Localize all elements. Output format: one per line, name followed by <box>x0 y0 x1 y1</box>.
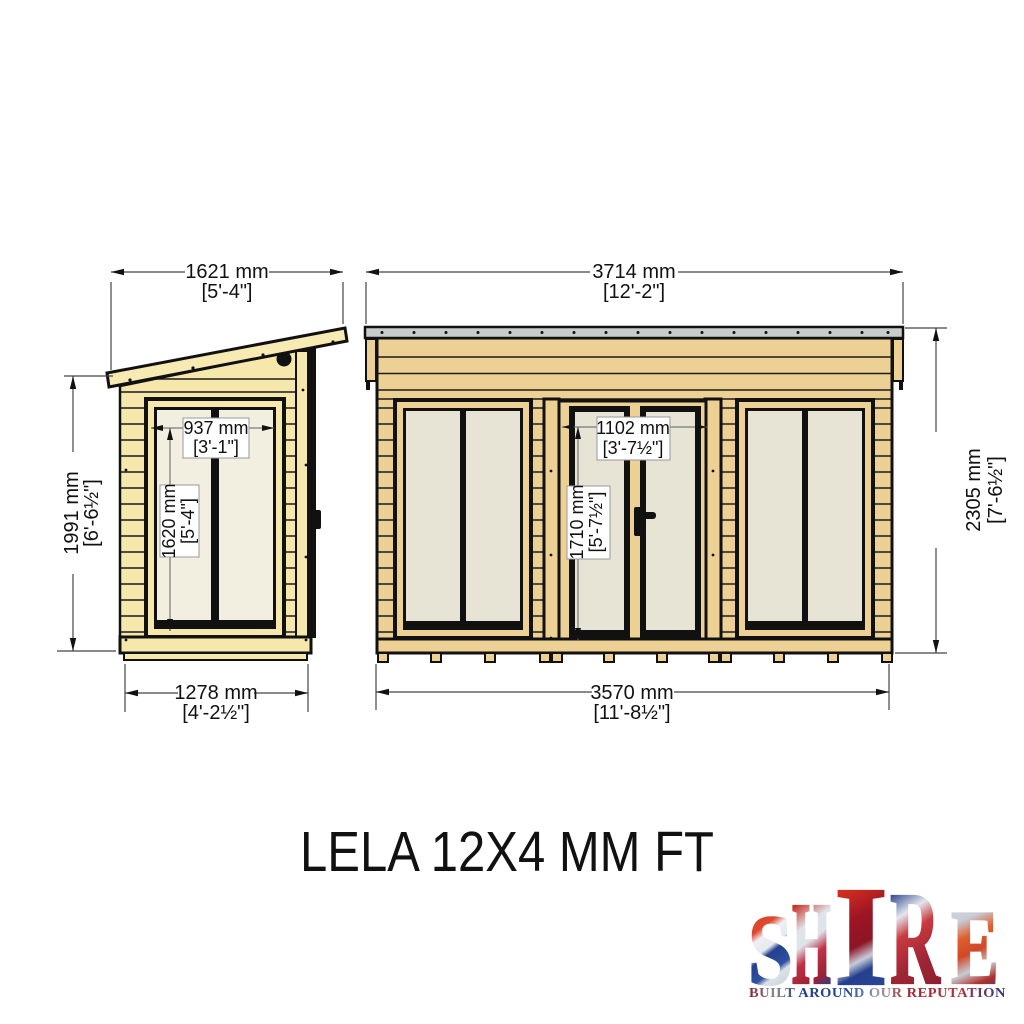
svg-text:BUILT AROUND OUR REPUTATION: BUILT AROUND OUR REPUTATION <box>749 985 1006 1000</box>
svg-text:[6'-6½"]: [6'-6½"] <box>81 479 103 547</box>
svg-text:1710 mm: 1710 mm <box>567 484 587 559</box>
svg-text:2305 mm: 2305 mm <box>963 448 985 531</box>
svg-text:1991 mm: 1991 mm <box>61 471 83 554</box>
svg-text:[3'-1"]: [3'-1"] <box>193 437 239 457</box>
svg-text:[7'-6½"]: [7'-6½"] <box>985 456 1007 524</box>
svg-text:1278 mm: 1278 mm <box>174 682 257 704</box>
svg-text:1620 mm: 1620 mm <box>159 483 179 558</box>
svg-text:3570 mm: 3570 mm <box>590 682 673 704</box>
svg-text:[3'-7½"]: [3'-7½"] <box>603 438 664 458</box>
svg-text:[5'-4"]: [5'-4"] <box>178 498 198 544</box>
svg-text:[12'-2"]: [12'-2"] <box>603 281 665 303</box>
svg-text:1102 mm: 1102 mm <box>596 418 670 438</box>
svg-text:LELA 12X4 MM FT: LELA 12X4 MM FT <box>300 820 714 884</box>
svg-text:937 mm: 937 mm <box>183 418 248 438</box>
svg-text:3714 mm: 3714 mm <box>592 261 675 283</box>
svg-text:[11'-8½"]: [11'-8½"] <box>593 702 670 724</box>
svg-text:[4'-2½"]: [4'-2½"] <box>182 702 250 724</box>
svg-text:1621 mm: 1621 mm <box>185 261 268 283</box>
svg-text:[5'-4"]: [5'-4"] <box>202 281 253 303</box>
svg-text:[5'-7½"]: [5'-7½"] <box>586 492 606 553</box>
